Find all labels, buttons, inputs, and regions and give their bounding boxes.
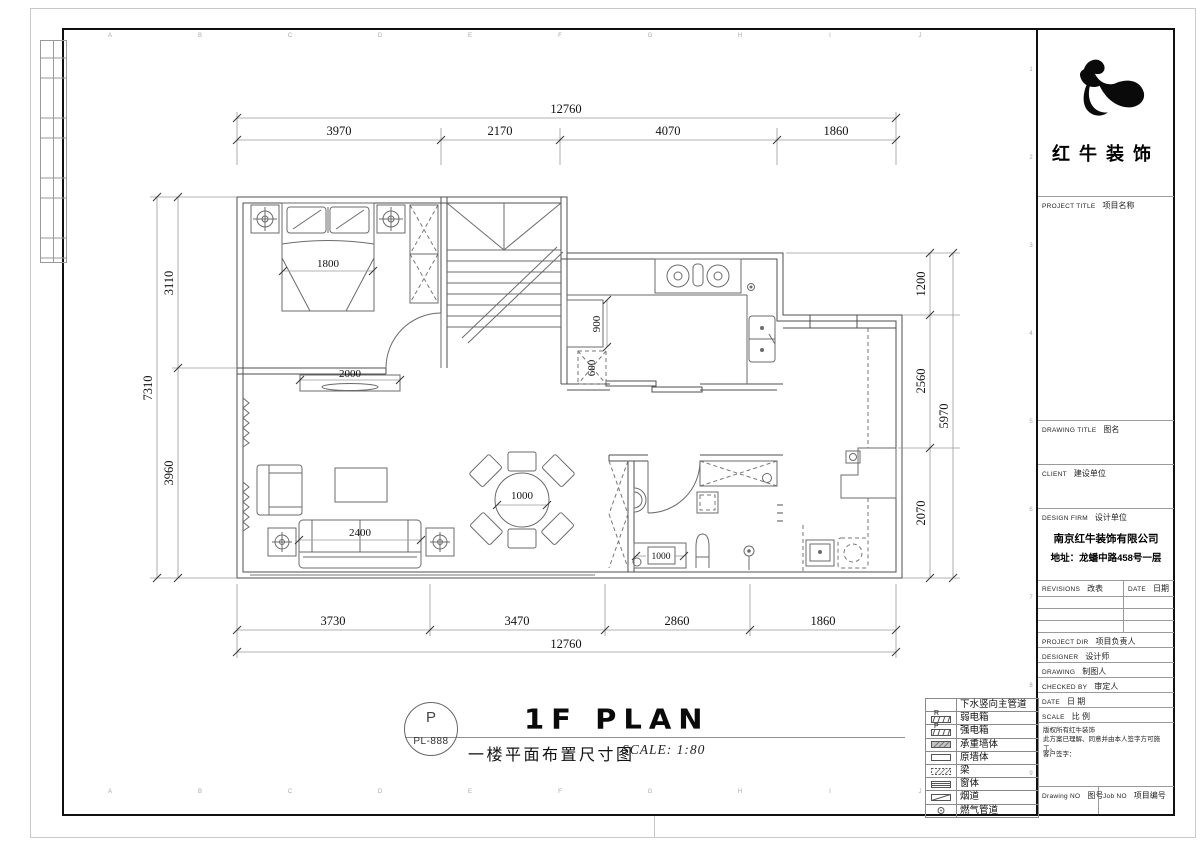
grid-letter-top: C xyxy=(288,33,293,39)
dim-bottom-total: 12760 xyxy=(550,637,581,651)
grid-letter-bottom: E xyxy=(468,789,472,795)
title-block: 红牛装饰 PROJECT TITLE 项目名称 DRAWING TITLE 图名… xyxy=(1038,28,1174,814)
drawing-stamp: P PL-888 xyxy=(404,702,458,756)
staff-en: DRAWING xyxy=(1042,669,1075,676)
legend-label: 原墙体 xyxy=(957,752,1038,764)
divider xyxy=(1038,722,1174,723)
client-row: CLIENT 建设单位 xyxy=(1042,468,1106,479)
legend-row: 窗体 xyxy=(926,778,1038,791)
beam-symbol xyxy=(926,765,957,777)
project-title-en: PROJECT TITLE xyxy=(1042,203,1096,210)
staff-en: CHECKED BY xyxy=(1042,684,1087,691)
strong-current-box-symbol: P xyxy=(926,725,957,737)
legend-label: 烟道 xyxy=(957,791,1038,803)
staff-row: DATE 日 期 xyxy=(1042,696,1085,707)
dim-right-2: 2560 xyxy=(914,369,928,394)
dim-left-2: 3960 xyxy=(162,461,176,486)
grid-number-right: 7 xyxy=(1029,595,1033,601)
stamp-letter: P xyxy=(405,709,457,726)
grid-number-right: 2 xyxy=(1029,155,1033,161)
divider xyxy=(1038,596,1174,597)
grid-letter-bottom: C xyxy=(288,789,293,795)
grid-letter-bottom: D xyxy=(378,789,383,795)
flue-symbol xyxy=(926,791,957,803)
grid-letter-bottom: H xyxy=(738,789,742,795)
revisions-cn: 改表 xyxy=(1087,584,1103,593)
legend-row: 燃气管道 xyxy=(926,805,1038,818)
grid-letter-bottom: G xyxy=(648,789,653,795)
staff-row: DESIGNER 设计师 xyxy=(1042,651,1109,662)
staff-cn: 制图人 xyxy=(1082,667,1106,676)
legend-row: 原墙体 xyxy=(926,752,1038,765)
symbol-letter: P xyxy=(934,723,939,730)
drawing-no-row: Drawing NO 图号 xyxy=(1042,790,1103,801)
legend-label: 下水竖向主管道 xyxy=(957,699,1038,711)
project-title-cn: 项目名称 xyxy=(1102,201,1134,210)
client-en: CLIENT xyxy=(1042,471,1067,478)
legend-row: P 强电箱 xyxy=(926,725,1038,738)
divider xyxy=(1038,662,1174,663)
grid-letter-top: G xyxy=(648,33,653,39)
dim-sofa: 2400 xyxy=(349,527,372,539)
job-no-en: Job NO xyxy=(1103,793,1127,800)
legend-label: 强电箱 xyxy=(957,725,1038,737)
customer-sign-label: 客户签字： xyxy=(1043,750,1169,759)
load-bearing-wall-symbol xyxy=(926,739,957,751)
legend-row: 梁 xyxy=(926,765,1038,778)
grid-letter-bottom: J xyxy=(919,789,922,795)
divider xyxy=(1038,508,1174,509)
dim-tv-wall: 2000 xyxy=(339,368,362,380)
dim-bath-vanity: 1000 xyxy=(652,552,671,562)
grid-number-right: 5 xyxy=(1029,419,1033,425)
bedroom-furniture xyxy=(251,203,438,311)
title-divider-line xyxy=(405,737,905,738)
dim-bottom-2: 3470 xyxy=(505,614,530,628)
dim-dining-table: 1000 xyxy=(511,490,534,502)
weak-current-box-symbol: R xyxy=(926,712,957,724)
drawing-title-en: DRAWING TITLE xyxy=(1042,427,1096,434)
living-furniture xyxy=(243,375,575,568)
dim-kitchen-cabinet: 600 xyxy=(586,359,598,376)
dimension-lines xyxy=(150,112,960,658)
divider xyxy=(1038,647,1174,648)
drawing-title-row: DRAWING TITLE 图名 xyxy=(1042,424,1119,435)
symbol-letter: R xyxy=(934,710,939,717)
design-firm-cn: 设计单位 xyxy=(1095,513,1127,522)
client-cn: 建设单位 xyxy=(1074,469,1106,478)
staff-row: PROJECT DIR 项目负责人 xyxy=(1042,636,1135,647)
rev-date-cn: 日期 xyxy=(1153,584,1169,593)
staff-cn: 日 期 xyxy=(1067,697,1085,706)
revisions-column-divider xyxy=(1123,580,1124,632)
divider xyxy=(1038,464,1174,465)
staff-en: SCALE xyxy=(1042,714,1065,721)
grid-letter-bottom: A xyxy=(108,789,112,795)
grid-number-right: 1 xyxy=(1029,67,1033,73)
drawing-no-cn: 图号 xyxy=(1087,791,1103,800)
brand-name: 红牛装饰 xyxy=(1038,140,1174,166)
dim-top-3: 4070 xyxy=(656,124,681,138)
dim-bottom-1: 3730 xyxy=(321,614,346,628)
staff-en: DESIGNER xyxy=(1042,654,1078,661)
grid-number-right: 8 xyxy=(1029,683,1033,689)
staff-row: SCALE 比 例 xyxy=(1042,711,1090,722)
job-no-cn: 项目编号 xyxy=(1134,791,1166,800)
legend-label: 燃气管道 xyxy=(957,805,1038,817)
dim-top-4: 1860 xyxy=(824,124,849,138)
dimension-texts: 12760 3970 2170 4070 1860 3730 3470 2860… xyxy=(141,102,951,651)
dim-right-3: 2070 xyxy=(914,501,928,526)
legend-row: 烟道 xyxy=(926,791,1038,804)
revisions-header: REVISIONS 改表 xyxy=(1042,583,1103,594)
drawing-title-cn: 图名 xyxy=(1103,425,1119,434)
drawing-no-en: Drawing NO xyxy=(1042,793,1080,800)
grid-reference-marks: A B C D E F G H I J A B C D E F G H I J … xyxy=(108,33,1033,795)
design-firm-en: DESIGN FIRM xyxy=(1042,515,1088,522)
dim-top-total: 12760 xyxy=(550,102,581,116)
project-title-row: PROJECT TITLE 项目名称 xyxy=(1042,200,1134,211)
dim-kitchen-counter: 900 xyxy=(591,315,603,332)
gas-pipe-symbol xyxy=(926,805,957,817)
legend-row: 下水竖向主管道 xyxy=(926,699,1038,712)
staff-row: DRAWING 制图人 xyxy=(1042,666,1106,677)
dim-right-1: 1200 xyxy=(914,272,928,297)
dim-top-2: 2170 xyxy=(488,124,513,138)
legend-table: 下水竖向主管道 R 弱电箱 P 强电箱 承重墙体 原墙体 xyxy=(925,698,1039,818)
grid-number-right: 6 xyxy=(1029,507,1033,513)
legend-label: 承重墙体 xyxy=(957,739,1038,751)
staff-cn: 设计师 xyxy=(1085,652,1109,661)
drawing-title-cn: 一楼平面布置尺寸图 xyxy=(468,741,635,765)
legend-label: 弱电箱 xyxy=(957,712,1038,724)
job-no-row: Job NO 项目编号 xyxy=(1103,790,1166,801)
dim-bed: 1800 xyxy=(317,258,340,270)
staff-row: CHECKED BY 审定人 xyxy=(1042,681,1118,692)
dim-top-1: 3970 xyxy=(327,124,352,138)
original-wall-symbol xyxy=(926,752,957,764)
divider xyxy=(1038,707,1174,708)
staff-cn: 审定人 xyxy=(1094,682,1118,691)
staff-cn: 比 例 xyxy=(1072,712,1090,721)
divider xyxy=(1038,786,1174,787)
divider xyxy=(1038,692,1174,693)
divider xyxy=(1038,632,1174,633)
stamp-code: PL-888 xyxy=(405,736,457,747)
legend-row: R 弱电箱 xyxy=(926,712,1038,725)
grid-letter-bottom: I xyxy=(829,789,831,795)
dim-left-total: 7310 xyxy=(141,376,155,401)
firm-address: 地址：龙蟠中路458号一层 xyxy=(1038,550,1174,564)
divider xyxy=(1038,580,1174,581)
rev-date-en: DATE xyxy=(1128,586,1146,593)
legend-label: 窗体 xyxy=(957,778,1038,790)
copyright-line1: 版权所有红牛装饰 xyxy=(1043,726,1169,735)
firm-name: 南京红牛装饰有限公司 xyxy=(1038,531,1174,546)
grid-letter-top: B xyxy=(198,33,202,39)
drawing-title-en: 1F PLAN xyxy=(524,703,710,735)
divider xyxy=(1038,620,1174,621)
divider xyxy=(1038,420,1174,421)
grid-letter-top: F xyxy=(558,33,562,39)
divider xyxy=(1038,677,1174,678)
divider xyxy=(1038,196,1174,197)
grid-letter-top: E xyxy=(468,33,472,39)
grid-letter-bottom: F xyxy=(558,789,562,795)
legend-label: 梁 xyxy=(957,765,1038,777)
balcony-fixtures xyxy=(806,448,896,566)
grid-letter-bottom: B xyxy=(198,789,202,795)
grid-number-right: 4 xyxy=(1029,331,1033,337)
grid-letter-top: J xyxy=(919,33,922,39)
drain-pipe-symbol xyxy=(926,699,957,711)
drawing-scale: SCALE: 1:80 xyxy=(622,742,705,758)
grid-letter-top: I xyxy=(829,33,831,39)
staff-en: DATE xyxy=(1042,699,1060,706)
grid-letter-top: D xyxy=(378,33,383,39)
design-firm-row: DESIGN FIRM 设计单位 xyxy=(1042,512,1127,523)
staff-en: PROJECT DIR xyxy=(1042,639,1089,646)
divider xyxy=(1038,608,1174,609)
legend-row: 承重墙体 xyxy=(926,739,1038,752)
staircase xyxy=(447,203,563,343)
brand-logo xyxy=(1060,53,1152,135)
drawing-sheet: 12760 3970 2170 4070 1860 3730 3470 2860… xyxy=(0,0,1200,844)
grid-letter-top: H xyxy=(738,33,742,39)
dim-left-1: 3110 xyxy=(162,271,176,296)
staff-cn: 项目负责人 xyxy=(1095,637,1135,646)
dim-bottom-3: 2860 xyxy=(665,614,690,628)
grid-number-right: 3 xyxy=(1029,243,1033,249)
grid-letter-top: A xyxy=(108,33,112,39)
dim-bottom-4: 1860 xyxy=(811,614,836,628)
window-symbol xyxy=(926,778,957,790)
revisions-en: REVISIONS xyxy=(1042,586,1080,593)
dim-right-total: 5970 xyxy=(937,404,951,429)
revisions-date-header: DATE 日期 xyxy=(1128,583,1169,594)
